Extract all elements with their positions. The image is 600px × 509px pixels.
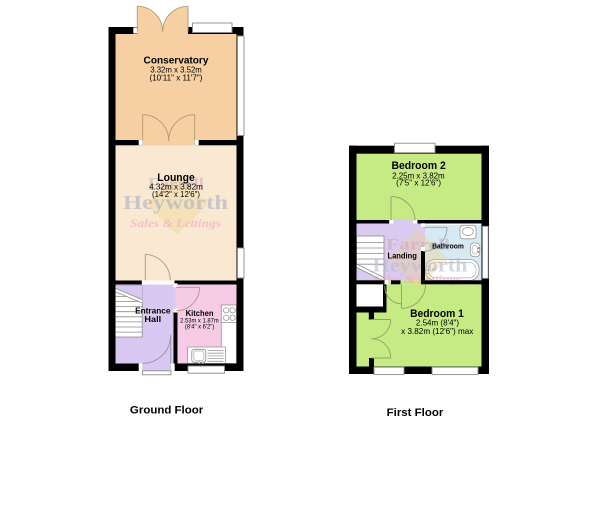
svg-text:(14'2" x 12'6"): (14'2" x 12'6")	[152, 189, 200, 199]
svg-text:Ground Floor: Ground Floor	[130, 404, 204, 416]
svg-text:(8'4" x 6'2"): (8'4" x 6'2")	[185, 324, 214, 331]
svg-text:First Floor: First Floor	[387, 407, 444, 419]
svg-text:Sales & Lettings: Sales & Lettings	[130, 218, 222, 230]
svg-text:Landing: Landing	[387, 251, 417, 260]
svg-text:Hall: Hall	[144, 314, 161, 324]
svg-text:(10'11" x 11'7"): (10'11" x 11'7")	[150, 73, 203, 83]
svg-text:Kitchen: Kitchen	[186, 309, 214, 318]
svg-text:(7'5" x 12'6"): (7'5" x 12'6")	[396, 178, 441, 188]
svg-text:x 3.82m (12'6") max: x 3.82m (12'6") max	[401, 327, 473, 336]
svg-text:Bathroom: Bathroom	[432, 242, 464, 251]
